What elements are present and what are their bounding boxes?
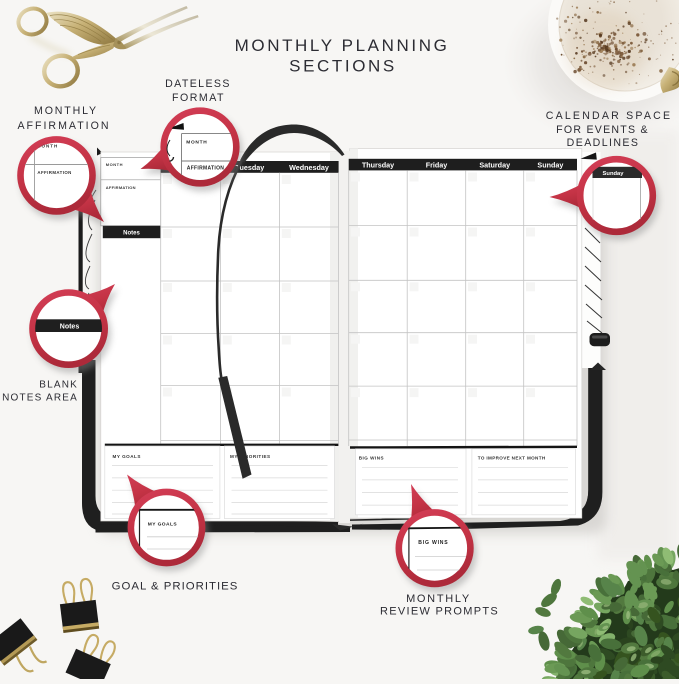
svg-text:REVIEW PROMPTS: REVIEW PROMPTS bbox=[380, 606, 499, 618]
svg-text:Wednesday: Wednesday bbox=[289, 163, 329, 172]
svg-text:AFFIRMATION: AFFIRMATION bbox=[17, 120, 110, 132]
svg-text:MONTH: MONTH bbox=[106, 162, 123, 167]
svg-text:Friday: Friday bbox=[426, 161, 448, 170]
svg-text:Saturday: Saturday bbox=[479, 161, 510, 170]
svg-text:BIG WINS: BIG WINS bbox=[359, 456, 384, 461]
svg-text:TO IMPROVE NEXT MONTH: TO IMPROVE NEXT MONTH bbox=[478, 456, 546, 461]
svg-text:DATELESS: DATELESS bbox=[165, 78, 231, 90]
svg-text:AFFIRMATION: AFFIRMATION bbox=[106, 185, 136, 190]
svg-text:BIG WINS: BIG WINS bbox=[418, 540, 448, 546]
svg-text:Sunday: Sunday bbox=[603, 171, 625, 177]
svg-text:MONTHLY: MONTHLY bbox=[34, 105, 98, 117]
svg-text:Thursday: Thursday bbox=[362, 161, 394, 170]
svg-text:FOR EVENTS &: FOR EVENTS & bbox=[556, 124, 649, 136]
svg-text:SECTIONS: SECTIONS bbox=[289, 57, 397, 76]
svg-text:MONTHLY PLANNING: MONTHLY PLANNING bbox=[235, 36, 450, 55]
svg-text:MY GOALS: MY GOALS bbox=[113, 454, 141, 459]
svg-text:MONTH: MONTH bbox=[186, 140, 207, 146]
svg-text:GOAL & PRIORITIES: GOAL & PRIORITIES bbox=[112, 581, 239, 593]
svg-text:Notes: Notes bbox=[123, 230, 140, 236]
svg-text:MY PRIORITIES: MY PRIORITIES bbox=[230, 454, 271, 459]
svg-text:DEADLINES: DEADLINES bbox=[567, 137, 640, 149]
svg-text:MONTHLY: MONTHLY bbox=[406, 593, 471, 605]
svg-text:AFFIRMATION: AFFIRMATION bbox=[187, 166, 224, 172]
svg-text:Sunday: Sunday bbox=[537, 161, 563, 170]
svg-text:MY GOALS: MY GOALS bbox=[148, 521, 178, 527]
svg-text:CALENDAR SPACE: CALENDAR SPACE bbox=[546, 110, 673, 122]
svg-text:BLANK: BLANK bbox=[39, 379, 78, 390]
svg-text:NOTES AREA: NOTES AREA bbox=[2, 393, 78, 404]
svg-text:AFFIRMATION: AFFIRMATION bbox=[37, 170, 71, 175]
svg-text:Notes: Notes bbox=[60, 324, 80, 331]
svg-text:FORMAT: FORMAT bbox=[172, 92, 225, 104]
